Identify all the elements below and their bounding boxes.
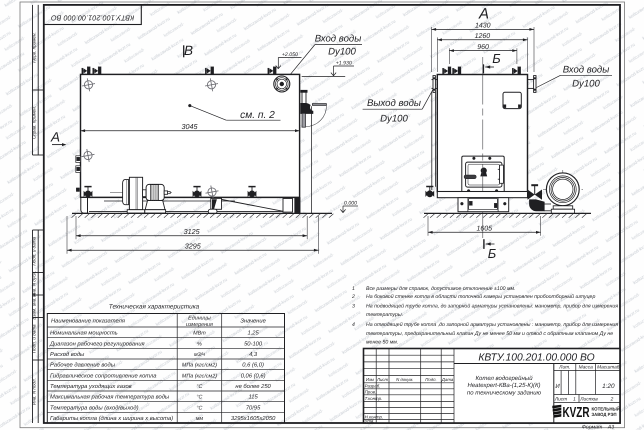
svg-text:960: 960 — [477, 44, 489, 51]
svg-text:Лист: Лист — [554, 397, 567, 403]
svg-text:KVZR: KVZR — [563, 405, 590, 421]
svg-text:по техническому заданию: по техническому заданию — [467, 389, 542, 396]
svg-text:Утв.: Утв. — [365, 419, 375, 424]
svg-text:Справ. примен.: Справ. примен. — [32, 106, 37, 139]
svg-text:4,3: 4,3 — [249, 351, 258, 358]
svg-text:см. п. 2: см. п. 2 — [240, 110, 275, 121]
svg-text:Рабочее давление воды: Рабочее давление воды — [50, 362, 116, 369]
svg-text:3045: 3045 — [182, 122, 199, 131]
svg-text:менее 50 мм.: менее 50 мм. — [366, 340, 398, 346]
svg-text:На боковой стенке котла в обла: На боковой стенке котла в области топочн… — [366, 294, 595, 300]
svg-text:Наименование показателя: Наименование показателя — [51, 318, 125, 324]
svg-text:Габариты котла (длина х ширина: Габариты котла (длина х ширина х высота) — [50, 415, 173, 422]
svg-text:Значение: Значение — [240, 317, 266, 324]
svg-text:Расход воды: Расход воды — [50, 351, 85, 358]
svg-text:Формат: Формат — [582, 424, 603, 430]
svg-text:Разраб.: Разраб. — [365, 384, 381, 389]
svg-text:Инв. N подл.: Инв. N подл. — [32, 378, 37, 405]
svg-text:N докум.: N докум. — [396, 377, 413, 382]
svg-text:Масштаб: Масштаб — [597, 365, 620, 371]
svg-text:МПа (кгс/см2): МПа (кгс/см2) — [182, 363, 217, 369]
svg-text:1260: 1260 — [475, 33, 491, 40]
svg-text:Т.контр.: Т.контр. — [365, 396, 383, 401]
svg-text:Пров.: Пров. — [365, 390, 377, 395]
svg-text:Техническая характеристика: Техническая характеристика — [109, 304, 200, 311]
svg-text:А3: А3 — [607, 424, 614, 430]
svg-text:Подп.: Подп. — [425, 377, 436, 382]
svg-text:Взам. инв. N: Взам. инв. N — [32, 292, 37, 319]
svg-text:Б: Б — [492, 51, 501, 66]
svg-text:0,06 (0,6): 0,06 (0,6) — [241, 372, 266, 379]
svg-text:Единицы: Единицы — [188, 315, 211, 321]
svg-text:Масса: Масса — [579, 365, 594, 371]
svg-text:115: 115 — [248, 395, 258, 401]
svg-text:0.000: 0.000 — [344, 200, 357, 206]
svg-text:Все размеры для справок, допус: Все размеры для справок, допустимое откл… — [366, 286, 516, 292]
svg-text:не более 250: не более 250 — [235, 383, 271, 390]
svg-text:МПа (кгс/см2): МПа (кгс/см2) — [182, 373, 217, 379]
svg-text:м3/ч: м3/ч — [194, 352, 205, 358]
svg-text:Номинальная мощность: Номинальная мощность — [50, 331, 118, 337]
svg-text:1: 1 — [573, 397, 576, 403]
svg-text:Б: Б — [488, 246, 497, 261]
svg-text:Диапазон рабочего регулировани: Диапазон рабочего регулирования — [49, 340, 145, 347]
svg-text:КОТЕЛЬНЫЙ: КОТЕЛЬНЫЙ — [592, 405, 621, 411]
svg-text:Вход воды: Вход воды — [563, 64, 610, 75]
svg-text:2: 2 — [610, 397, 614, 403]
svg-text:+1.930: +1.930 — [336, 60, 352, 66]
svg-text:1,25: 1,25 — [247, 330, 259, 337]
svg-text:В: В — [184, 43, 193, 58]
svg-text:°С: °С — [196, 395, 202, 401]
svg-text:3125: 3125 — [184, 227, 201, 236]
svg-text:Dy100: Dy100 — [572, 79, 600, 90]
svg-text:И: И — [555, 383, 560, 390]
svg-text:%: % — [197, 341, 202, 347]
svg-text:Dy100: Dy100 — [328, 47, 356, 58]
svg-text:А: А — [50, 130, 60, 145]
svg-text:Выход воды: Выход воды — [367, 98, 421, 109]
svg-text:Лист: Лист — [376, 377, 388, 382]
svg-text:МВт: МВт — [193, 331, 206, 337]
svg-text:3295: 3295 — [185, 241, 202, 250]
svg-text:0,6 (6,0): 0,6 (6,0) — [242, 362, 264, 369]
svg-text:КВТУ.100.201.00.000 ВО: КВТУ.100.201.00.000 ВО — [51, 14, 135, 23]
svg-text:°С: °С — [196, 384, 202, 390]
svg-text:КВТУ.100.201.00.000 ВО: КВТУ.100.201.00.000 ВО — [478, 352, 594, 363]
svg-text:Листов: Листов — [579, 397, 598, 403]
svg-text:мм: мм — [196, 416, 204, 422]
svg-text:Дата: Дата — [441, 377, 454, 382]
svg-text:70/95: 70/95 — [246, 404, 261, 411]
svg-text:50-100: 50-100 — [244, 340, 263, 347]
svg-text:На отводящей трубе котла ,до з: На отводящей трубе котла ,до запорной ар… — [366, 322, 618, 328]
svg-text:Изм: Изм — [366, 377, 374, 382]
svg-text:1:20: 1:20 — [602, 383, 615, 390]
svg-text:температуры.: температуры. — [366, 312, 403, 318]
svg-text:+2.050: +2.050 — [282, 52, 298, 58]
svg-text:3: 3 — [352, 304, 355, 310]
svg-text:измерения: измерения — [186, 322, 213, 328]
svg-text:4: 4 — [352, 322, 355, 328]
svg-text:Подп. и дата: Подп. и дата — [32, 236, 37, 265]
svg-text:Вход воды: Вход воды — [315, 34, 362, 45]
svg-text:На подводящей трубе котла, д: На подводящей трубе котла, до запорной а… — [366, 304, 618, 310]
svg-text:температуры, предохранительный: температуры, предохранительный клапан Ду… — [366, 331, 613, 337]
svg-text:Heatexpert-КВа-(1,25-К)(К): Heatexpert-КВа-(1,25-К)(К) — [468, 382, 541, 389]
svg-text:1430: 1430 — [475, 23, 491, 30]
svg-text:Лит.: Лит. — [558, 365, 570, 371]
svg-text:А: А — [478, 6, 489, 23]
svg-text:°С: °С — [196, 405, 202, 411]
svg-text:1: 1 — [352, 286, 355, 292]
svg-text:Температура уходящих газов: Температура уходящих газов — [50, 383, 132, 390]
svg-text:3295х1605х2050: 3295х1605х2050 — [231, 415, 276, 422]
svg-text:Температура воды (вход/выход): Температура воды (вход/выход) — [50, 404, 139, 411]
svg-text:ЗАВОД РЭП: ЗАВОД РЭП — [592, 412, 617, 417]
svg-text:Максимальная рабочая температу: Максимальная рабочая температура воды — [50, 394, 170, 401]
svg-text:Перв. примен.: Перв. примен. — [32, 32, 37, 63]
svg-text:Гидравлическое сопротивление к: Гидравлическое сопротивление котла — [50, 372, 157, 379]
svg-text:1605: 1605 — [477, 226, 493, 233]
svg-text:2: 2 — [351, 294, 355, 300]
svg-text:Dy100: Dy100 — [380, 114, 408, 125]
svg-text:Подп. и дата: Подп. и дата — [32, 324, 37, 353]
svg-text:Котел водогрейный: Котел водогрейный — [475, 375, 533, 382]
